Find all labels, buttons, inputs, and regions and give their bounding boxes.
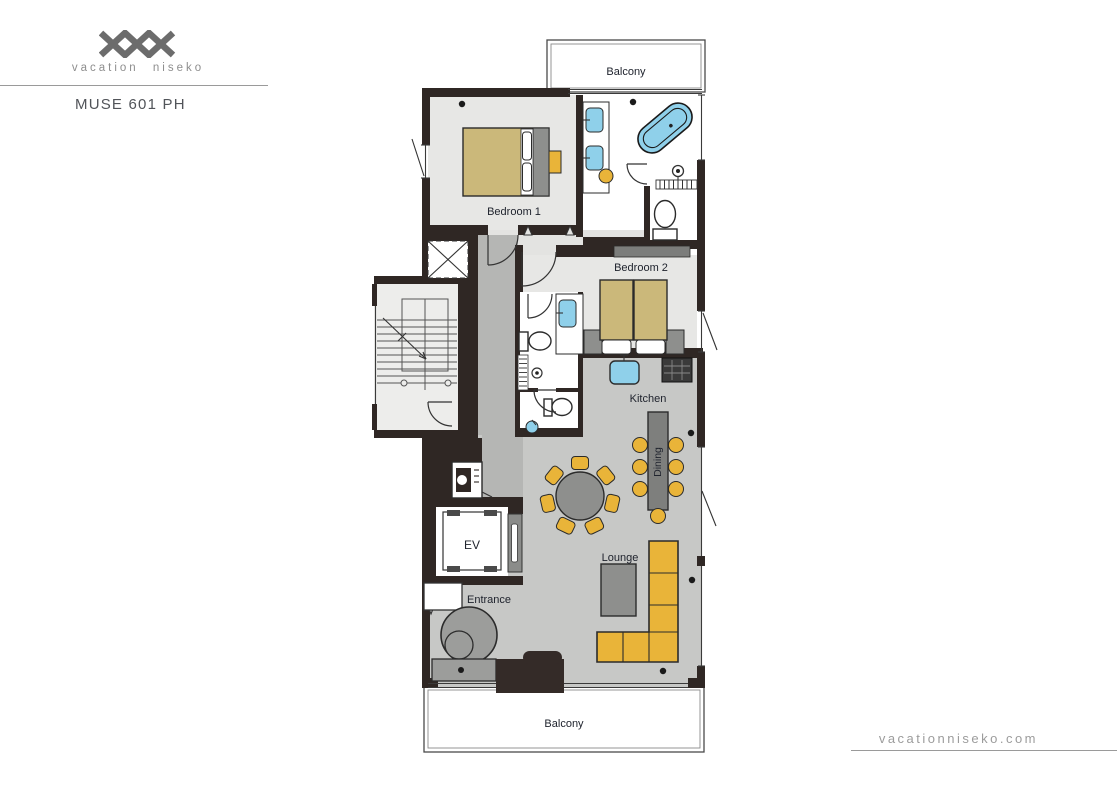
page: vacation niseko MUSE 601 PH <box>0 0 1117 788</box>
label-elevator: EV <box>464 538 480 552</box>
label-balcony-bottom: Balcony <box>544 718 584 730</box>
label-dining: Dining <box>652 447 664 477</box>
towel-rail-icon <box>656 180 697 189</box>
entry-step <box>424 583 462 610</box>
pillow-icon <box>523 132 532 160</box>
toilet-icon <box>552 399 572 416</box>
floorplan: Balcony Bedroom 1 Bedroom 2 Kitchen Dini… <box>0 0 1117 788</box>
label-kitchen: Kitchen <box>630 393 667 405</box>
label-bedroom-1: Bedroom 1 <box>487 206 541 218</box>
nightstand-icon <box>549 151 561 173</box>
hearth-block <box>496 659 564 693</box>
pillow-icon <box>602 340 631 354</box>
label-balcony-top: Balcony <box>606 66 646 78</box>
basin-icon <box>526 421 538 433</box>
bedroom1-bed <box>463 128 561 196</box>
toilet-icon <box>529 332 551 350</box>
bedroom2-closet <box>614 246 690 257</box>
label-lounge: Lounge <box>602 552 639 564</box>
service-shaft <box>428 241 468 278</box>
pillow-icon <box>636 340 665 354</box>
stool-icon <box>599 169 613 183</box>
coffee-table-icon <box>601 564 636 616</box>
label-bedroom-2: Bedroom 2 <box>614 262 668 274</box>
footer-divider <box>851 750 1117 751</box>
toilet-icon <box>655 201 676 228</box>
label-entrance: Entrance <box>467 594 511 606</box>
nightstand-icon <box>584 330 602 354</box>
kitchen-sink-icon <box>610 361 639 384</box>
log-holder-icon <box>523 651 562 664</box>
pillow-icon <box>523 163 532 191</box>
stove-icon <box>662 358 692 382</box>
nightstand-icon <box>666 330 684 354</box>
footer-website: vacationniseko.com <box>879 731 1038 746</box>
